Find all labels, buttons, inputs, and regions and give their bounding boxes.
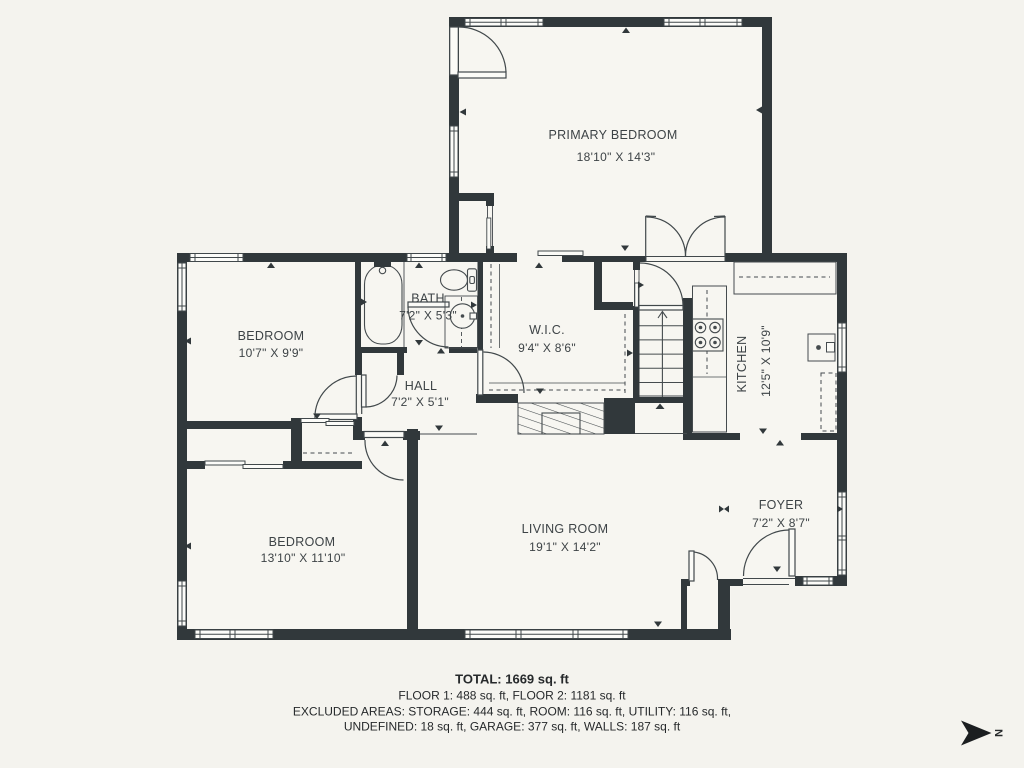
svg-text:9'4" X 8'6": 9'4" X 8'6"	[518, 341, 576, 355]
svg-text:12'5" X 10'9": 12'5" X 10'9"	[759, 325, 773, 397]
svg-text:7'2" X 5'1": 7'2" X 5'1"	[391, 395, 449, 409]
svg-text:W.I.C.: W.I.C.	[529, 323, 565, 337]
svg-text:BATH: BATH	[411, 292, 445, 306]
svg-text:EXCLUDED AREAS: STORAGE: 444 s: EXCLUDED AREAS: STORAGE: 444 sq. ft, ROO…	[293, 705, 731, 719]
svg-text:FOYER: FOYER	[759, 498, 804, 512]
svg-text:FLOOR 1: 488 sq. ft, FLOOR 2:: FLOOR 1: 488 sq. ft, FLOOR 2: 1181 sq. f…	[398, 689, 626, 703]
svg-text:7'2" X 5'3": 7'2" X 5'3"	[399, 309, 457, 323]
svg-text:HALL: HALL	[405, 379, 437, 393]
svg-text:BEDROOM: BEDROOM	[269, 535, 336, 549]
svg-text:KITCHEN: KITCHEN	[735, 336, 749, 393]
svg-text:TOTAL: 1669 sq. ft: TOTAL: 1669 sq. ft	[455, 672, 569, 687]
svg-text:19'1" X 14'2": 19'1" X 14'2"	[529, 540, 601, 554]
svg-text:PRIMARY BEDROOM: PRIMARY BEDROOM	[548, 128, 677, 142]
svg-text:BEDROOM: BEDROOM	[238, 329, 305, 343]
svg-text:7'2" X 8'7": 7'2" X 8'7"	[752, 516, 810, 530]
svg-text:N: N	[992, 729, 1004, 737]
svg-text:LIVING ROOM: LIVING ROOM	[522, 522, 609, 536]
svg-text:UNDEFINED: 18 sq. ft, GARAGE:: UNDEFINED: 18 sq. ft, GARAGE: 377 sq. ft…	[344, 720, 681, 734]
svg-text:13'10" X 11'10": 13'10" X 11'10"	[261, 551, 346, 565]
svg-text:18'10" X 14'3": 18'10" X 14'3"	[577, 150, 656, 164]
svg-text:10'7" X 9'9": 10'7" X 9'9"	[239, 346, 304, 360]
